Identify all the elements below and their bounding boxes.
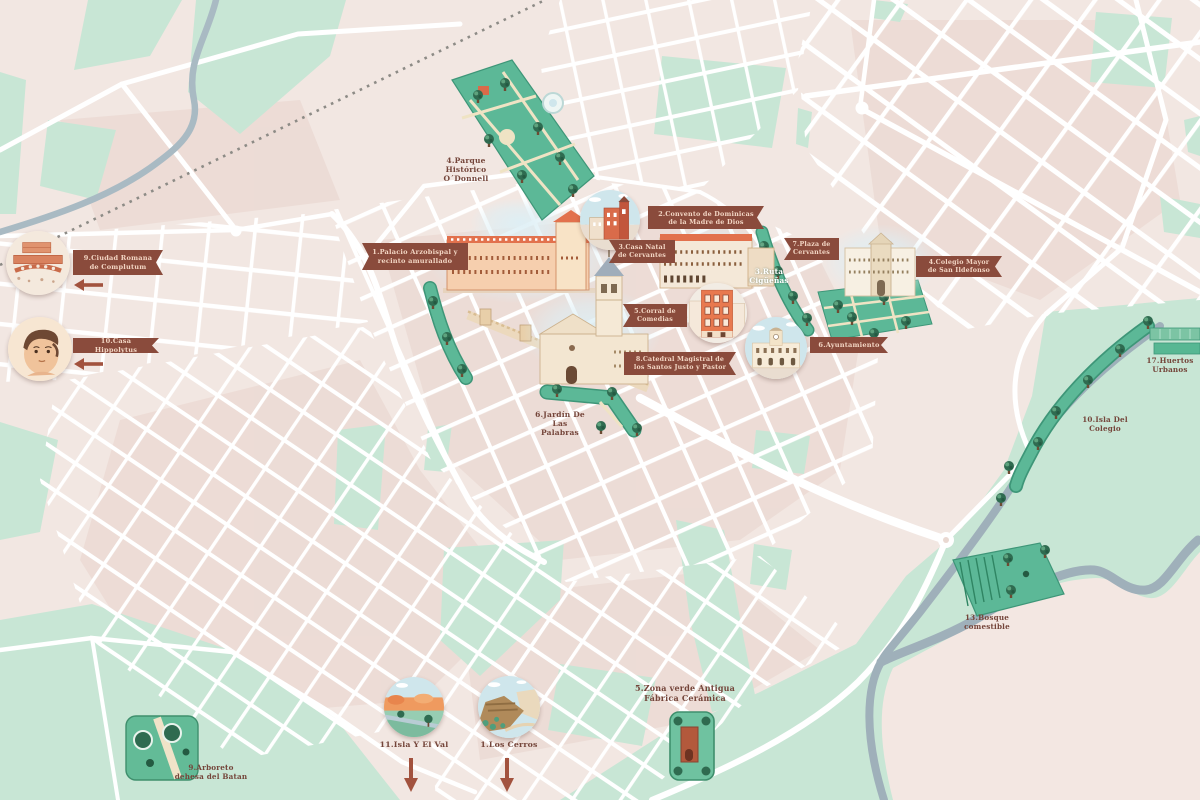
ribbon-label: 9.Ciudad Romana de Complutum [81, 254, 155, 270]
ribbon-label: 7.Plaza de Cervantes [792, 241, 831, 257]
tourist-map: 1.Palacio Arzobispal y recinto amurallad… [0, 0, 1200, 800]
ribbon-ayuntamiento[interactable]: 6.Ayuntamiento [810, 337, 888, 353]
arrow-left-ciudad-romana [74, 279, 104, 291]
label-bosque-comestible: 13.Bosque comestible [962, 614, 1012, 632]
label-isla-el-val: 11.Isla Y El Val [372, 740, 456, 750]
poi-casa-hippolytus[interactable] [8, 317, 72, 381]
ribbon-colegio-mayor[interactable]: 4.Colegio Mayor de San Ildefonso [916, 256, 1002, 277]
ribbon-catedral[interactable]: 8.Catedral Magistral de los Santos Justo… [624, 352, 736, 375]
hills-landscape-icon [478, 676, 540, 738]
ribbon-label: 10.Casa Hippolytus [81, 337, 151, 353]
arrow-left-casa-hippolytus [74, 358, 104, 370]
ribbon-casa-hippolytus[interactable]: 10.Casa Hippolytus [73, 338, 159, 353]
theatre-facade-icon [687, 283, 747, 343]
poi-isla-el-val[interactable] [384, 677, 444, 737]
ribbon-label: 5.Corral de Comedias [631, 308, 679, 324]
ribbon-label: 2.Convento de Dominicas de la Madre de D… [656, 210, 756, 226]
ribbon-palacio-arzobispal[interactable]: 1.Palacio Arzobispal y recinto amurallad… [362, 243, 468, 270]
label-parque-odonnell: 4.Parque Histórico O´Donnell [442, 156, 490, 183]
ribbon-plaza-cervantes[interactable]: 7.Plaza de Cervantes [784, 238, 839, 260]
label-jardin-palabras: 6.Jardín De Las Palabras [533, 410, 587, 437]
arrow-down-los-cerros [500, 758, 514, 794]
label-zona-verde-fabrica: 5.Zona verde Antigua Fábrica Cerámica [633, 684, 737, 704]
ribbon-label: 6.Ayuntamiento [818, 341, 879, 349]
fabrica-ceramica-marker[interactable] [670, 712, 714, 780]
ribbon-label: 8.Catedral Magistral de los Santos Justo… [632, 356, 728, 372]
roman-ruins-icon [6, 231, 70, 295]
ribbon-corral-comedias[interactable]: 5.Corral de Comedias [623, 304, 687, 327]
label-huertos-urbanos: 17.Huertos Urbanos [1146, 357, 1194, 375]
label-isla-colegio: 10.Isla Del Colegio [1080, 416, 1130, 434]
label-ruta-ciguenas: 3.Ruta Cigüeñas [748, 268, 790, 286]
poi-ciudad-romana[interactable] [6, 231, 70, 295]
arrow-down-isla-el-val [404, 758, 418, 794]
town-hall-icon [745, 317, 807, 379]
ribbon-label: 4.Colegio Mayor de San Ildefonso [924, 259, 994, 275]
poi-los-cerros[interactable] [478, 676, 540, 738]
label-arboreto: 9.Arboreto dehesa del Batan [174, 764, 248, 782]
ribbon-convento-dominicas[interactable]: 2.Convento de Dominicas de la Madre de D… [648, 206, 764, 229]
poi-ayuntamiento[interactable] [745, 317, 807, 379]
mosaic-face-icon [8, 317, 72, 381]
ribbon-casa-natal[interactable]: 3.Casa Natal de Cervantes [609, 240, 675, 263]
poi-corral-comedias[interactable] [687, 283, 747, 343]
river-park-landscape-icon [384, 677, 444, 737]
map-canvas [0, 0, 1200, 800]
label-los-cerros: 1.Los Cerros [478, 740, 540, 750]
ribbon-label: 3.Casa Natal de Cervantes [617, 244, 667, 260]
ribbon-ciudad-romana[interactable]: 9.Ciudad Romana de Complutum [73, 250, 163, 275]
ribbon-label: 1.Palacio Arzobispal y recinto amurallad… [370, 248, 460, 264]
